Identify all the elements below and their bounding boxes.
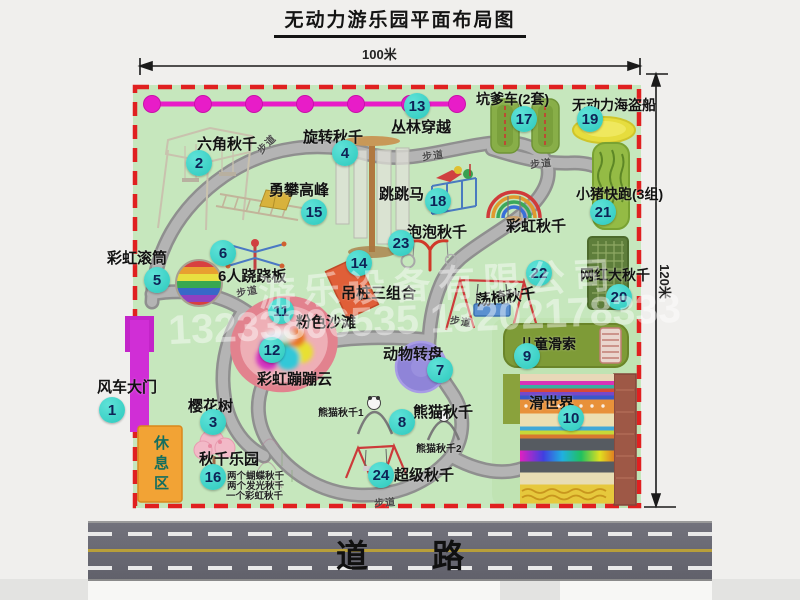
- rest-area-label: 休息区: [150, 435, 171, 495]
- badge-23-bubble-swing: 23: [388, 230, 414, 256]
- layout-plan-image: 无动力游乐园平面布局图 100米 120米 风车大门 六角秋千 樱花树 旋转秋千…: [0, 0, 800, 600]
- badge-22-chair-swing: 22: [526, 260, 552, 286]
- badge-3-cherry-tree: 3: [200, 409, 226, 435]
- badge-10-slide-world: 10: [558, 405, 584, 431]
- badge-8-panda-swing: 8: [389, 409, 415, 435]
- label-panda-swing-2: 熊猫秋千2: [416, 440, 462, 455]
- badge-11-pink-beach: 11: [268, 298, 294, 324]
- badge-18-jumping-horse: 18: [425, 188, 451, 214]
- badge-1-windmill-gate: 1: [99, 397, 125, 423]
- badge-5-rainbow-roller: 5: [144, 267, 170, 293]
- label-windmill-gate: 风车大门: [97, 376, 157, 397]
- badge-24-super-swing: 24: [368, 462, 394, 488]
- label-swing-park-note-3: 一个彩虹秋千: [226, 488, 283, 502]
- badge-16-swing-park: 16: [200, 464, 226, 490]
- label-big-swing: 网红大秋千: [580, 265, 650, 285]
- height-dimension-label: 120米: [656, 264, 675, 299]
- label-pit-car: 坑爹车(2套): [476, 89, 549, 109]
- page-title: 无动力游乐园平面布局图: [274, 5, 525, 38]
- badge-6-six-person-seesaw: 6: [210, 240, 236, 266]
- badge-14-hanging-posts: 14: [346, 250, 372, 276]
- badge-12-rainbow-bounce-cloud: 12: [259, 337, 285, 363]
- label-pink-beach: 粉色沙滩: [296, 311, 356, 332]
- road-label: 道路: [88, 531, 712, 577]
- label-hexagon-swing: 六角秋千: [197, 133, 257, 154]
- badge-20-big-swing: 20: [606, 284, 632, 310]
- badge-21-piggy-run: 21: [590, 199, 616, 225]
- badge-4-rotating-swing: 4: [332, 140, 358, 166]
- label-hanging-posts-combo: 吊桩三组合: [341, 282, 416, 303]
- label-jungle-crossing: 丛林穿越: [391, 116, 451, 137]
- label-jumping-horse: 跳跳马: [379, 183, 424, 204]
- label-rainbow-bounce-cloud: 彩虹蹦蹦云: [257, 368, 332, 389]
- label-bubble-swing: 泡泡秋千: [407, 221, 467, 242]
- walkway-label-2: 步道: [421, 146, 445, 164]
- badge-15-peak-climbing: 15: [301, 199, 327, 225]
- road: 道路: [88, 521, 712, 581]
- badge-2-hexagon-swing: 2: [186, 150, 212, 176]
- label-panda-swing-1: 熊猫秋千1: [318, 404, 364, 419]
- label-peak-climbing: 勇攀高峰: [269, 179, 329, 200]
- badge-13-jungle-crossing: 13: [404, 93, 430, 119]
- badge-9-kids-zipline: 9: [514, 343, 540, 369]
- walkway-label-3: 步道: [529, 154, 552, 171]
- walkway-label-5: 步道: [449, 312, 473, 330]
- badge-7-animal-carousel: 7: [427, 357, 453, 383]
- label-piggy-run: 小猪快跑(3组): [576, 184, 663, 204]
- label-rainbow-roller: 彩虹滚筒: [107, 247, 167, 268]
- label-panda-swing: 熊猫秋千: [413, 401, 473, 422]
- badge-17-pit-car: 17: [511, 106, 537, 132]
- badge-19-pirate-ship: 19: [577, 106, 603, 132]
- width-dimension-label: 100米: [362, 44, 397, 63]
- label-rainbow-swing: 彩虹秋千: [506, 215, 566, 236]
- label-super-swing: 超级秋千: [394, 464, 454, 485]
- below-road-block-2: [560, 579, 712, 600]
- walkway-label-6: 步道: [374, 493, 397, 509]
- below-road-block-1: [88, 579, 500, 600]
